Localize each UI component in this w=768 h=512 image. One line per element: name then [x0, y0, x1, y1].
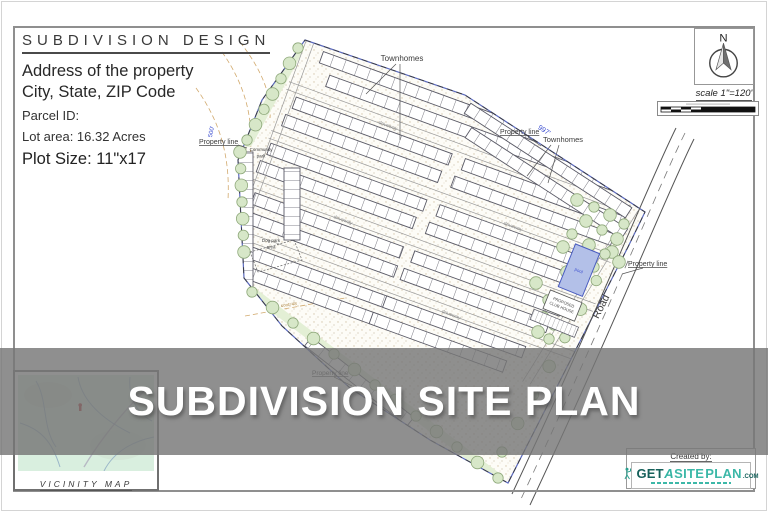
logo-text-com: .COM [743, 474, 759, 480]
tree [238, 230, 248, 240]
logo-text-site: SITE [674, 467, 704, 480]
logo-text-a: A [664, 467, 673, 480]
tree [283, 57, 296, 70]
tree [307, 332, 320, 345]
tree [293, 43, 303, 53]
logo-text-get: GET [636, 467, 663, 480]
parking-comb [284, 168, 300, 240]
tree [236, 212, 249, 225]
tree [557, 241, 570, 254]
tree [238, 246, 251, 259]
tree [613, 256, 626, 269]
north-label: N [719, 32, 727, 44]
property-line-label-right: Property line [628, 261, 667, 268]
banner-title: SUBDIVISION SITE PLAN [127, 378, 640, 425]
logo-text-plan: PLAN [705, 467, 742, 480]
parcel-id: Parcel ID: [22, 106, 270, 126]
townhomes-label-right: Townhomes [543, 135, 583, 144]
tree [619, 219, 629, 229]
tree [247, 287, 257, 297]
tree [604, 209, 617, 222]
townhomes-label-top: Townhomes [381, 54, 424, 63]
north-arrow-box: N [694, 28, 754, 85]
sheet-title: SUBDIVISION DESIGN [22, 32, 270, 54]
vicinity-map-label: VICINITY MAP [40, 479, 133, 491]
address-line: Address of the property [22, 61, 270, 82]
tree [597, 225, 607, 235]
title-block: SUBDIVISION DESIGN Address of the proper… [22, 32, 270, 169]
tree [571, 194, 584, 207]
graphic-scale-bar [657, 101, 759, 116]
logo-tagline [651, 482, 731, 484]
plan-sheet: pool PROPOSED CLUB HOUSE driveway drivew… [0, 0, 768, 512]
tree [532, 326, 545, 339]
scale-text: scale 1"=120' [690, 88, 758, 99]
tree [237, 197, 247, 207]
property-line-label-topright: Property line [500, 129, 539, 136]
lot-area: Lot area: 16.32 Acres [22, 127, 270, 147]
city-line: City, State, ZIP Code [22, 82, 270, 103]
scale-text-value: scale 1"=120' [696, 88, 753, 101]
surveyor-icon [623, 467, 634, 480]
tree [493, 473, 503, 483]
tree [589, 202, 599, 212]
logo-box: GETASITEPLAN.COM [631, 462, 751, 489]
tree [471, 456, 484, 469]
tree [600, 249, 610, 259]
dog-park-label-1: Dog park [262, 238, 281, 243]
tree [288, 318, 298, 328]
tree [276, 73, 286, 83]
tree [266, 301, 279, 314]
scale-bar-icon [658, 102, 758, 115]
tree [611, 233, 624, 246]
dog-park-label-2: area [266, 245, 276, 250]
north-arrow-icon: N [695, 29, 752, 83]
tree [591, 275, 601, 285]
tree [567, 229, 577, 239]
tree [530, 277, 543, 290]
tree [544, 334, 554, 344]
plot-size: Plot Size: 11"x17 [22, 150, 270, 169]
watermark-banner: SUBDIVISION SITE PLAN [0, 348, 768, 455]
tree [580, 215, 593, 228]
tree [235, 179, 248, 192]
